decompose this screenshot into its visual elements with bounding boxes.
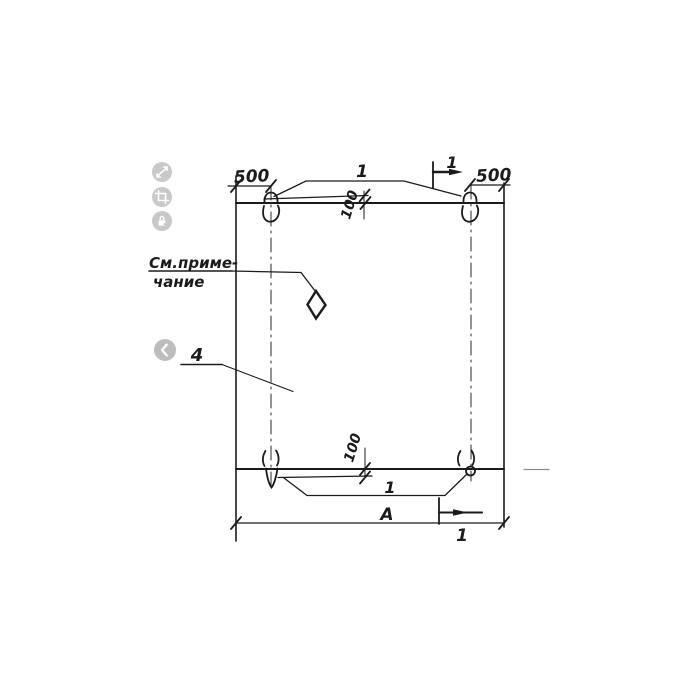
dim-500-right-value: 500	[475, 165, 512, 187]
crop-icon	[152, 187, 172, 207]
position-label-loops-top: 1	[356, 162, 368, 182]
section-label-top: 1	[446, 153, 457, 172]
expand-icon	[152, 162, 172, 182]
panel-outline	[236, 176, 504, 541]
section-label-bottom: 1	[456, 526, 468, 546]
lifting-loop-top-right	[462, 193, 478, 222]
expand-button[interactable]	[152, 162, 172, 182]
position-label-panel: 4	[190, 345, 204, 366]
note-reference-line1: См.приме-	[149, 254, 238, 272]
drawing-viewer: 500 500 100 100 1 1 1 1 А См.приме- чани…	[0, 0, 700, 700]
position-label-loops-bottom: 1	[384, 478, 395, 497]
dim-100-top-value: 100	[338, 188, 362, 221]
mark-rhombus-symbol	[308, 291, 326, 319]
loop-centerlines	[271, 185, 471, 488]
panel-plan-drawing: 500 500 100 100 1 1 1 1 А См.приме- чани…	[0, 0, 700, 700]
lock-icon	[152, 211, 172, 231]
crop-button[interactable]	[152, 187, 172, 207]
previous-button[interactable]	[154, 339, 176, 361]
chevron-left-icon	[154, 339, 176, 361]
note-leader	[232, 271, 316, 292]
section-mark-bottom	[439, 498, 482, 524]
label4-leader	[222, 365, 293, 392]
note-reference-line2: чание	[153, 273, 204, 291]
leader-lines	[149, 181, 467, 496]
lock-button[interactable]	[152, 211, 172, 231]
dim-500-left-value: 500	[233, 166, 270, 188]
dim-overall-width-value: А	[378, 505, 393, 525]
dim-100-bottom-value: 100	[341, 431, 365, 464]
lifting-loop-bottom-right	[458, 451, 475, 476]
dim-100-bottom-line	[278, 476, 372, 478]
